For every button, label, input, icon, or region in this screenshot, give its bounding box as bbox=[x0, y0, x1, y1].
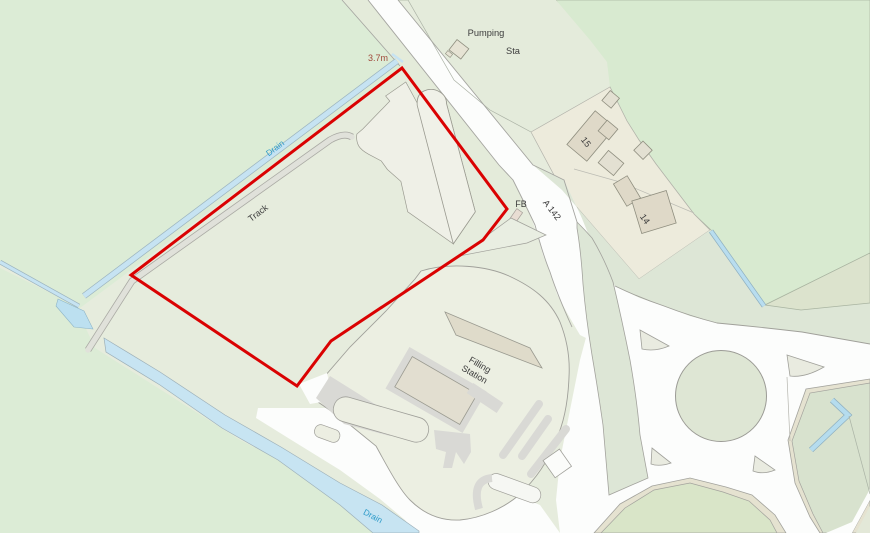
svg-text:3.7m: 3.7m bbox=[368, 53, 388, 63]
svg-text:Sta: Sta bbox=[506, 46, 521, 56]
svg-text:Pumping: Pumping bbox=[468, 28, 505, 38]
svg-text:FB: FB bbox=[515, 199, 527, 209]
